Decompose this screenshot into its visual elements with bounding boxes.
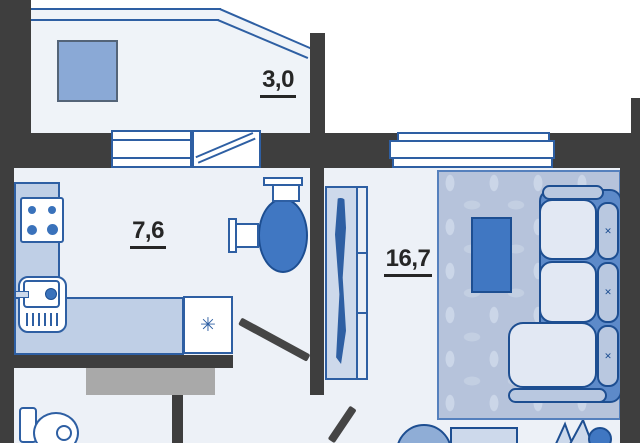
kitchen-window-mullion (113, 139, 190, 141)
sofa-seat-cushion (539, 261, 597, 323)
stove-burner (48, 206, 56, 214)
chair-seat (235, 223, 259, 248)
balcony-railing-inner (31, 19, 219, 21)
coffee-table (471, 217, 512, 293)
living-area-value: 16,7 (384, 247, 433, 277)
stove-icon (20, 197, 64, 243)
stove-burner (47, 224, 58, 235)
toilet-button (56, 425, 72, 441)
wardrobe-door-divider (356, 312, 366, 314)
kitchen-window (111, 130, 192, 168)
wardrobe-door-strip (356, 188, 366, 378)
tuft-mark: ✕ (604, 352, 612, 361)
tuft-mark: ✕ (604, 288, 612, 297)
washing-machine-grille (38, 313, 40, 326)
fridge-snowflake-glyph: ✳ (200, 314, 216, 337)
balcony-railing-outer (31, 8, 221, 10)
balcony-table (57, 40, 118, 102)
wall-balcony-pillar (310, 33, 325, 135)
wall-kitchen-bottom (14, 355, 233, 368)
kitchen-area-value: 7,6 (130, 219, 166, 249)
sofa-chaise-cushion (508, 322, 597, 388)
washing-machine-grille (56, 313, 58, 326)
washing-machine-knob (45, 288, 57, 300)
stove-burner (27, 225, 37, 235)
balcony-area-label: 3,0 (244, 68, 312, 98)
wall-balcony-left (0, 0, 31, 145)
sofa-back-cushion: ✕ (597, 325, 619, 387)
fridge-icon: ✳ (183, 296, 233, 354)
sofa-seat-cushion (539, 199, 597, 260)
chair-seat (272, 184, 300, 202)
kitchen-window-mullion (113, 157, 190, 159)
washing-machine-grille (32, 313, 34, 326)
wardrobe-door-divider (356, 252, 366, 254)
sofa-back-cushion: ✕ (597, 202, 619, 260)
washing-machine-grille (44, 313, 46, 326)
washing-machine-grille (50, 313, 52, 326)
plant-icon (553, 420, 615, 443)
wall-bathroom-stub (172, 395, 183, 443)
washing-machine-grille (26, 313, 28, 326)
washing-machine-handle (15, 291, 29, 298)
balcony-area-value: 3,0 (260, 68, 296, 98)
hall-desk (450, 427, 518, 443)
sofa-back-cushion: ✕ (597, 262, 619, 323)
living-area-label: 16,7 (374, 247, 442, 277)
ventilation-duct (86, 368, 215, 395)
wall-left (0, 145, 14, 443)
wall-right-notch (631, 98, 640, 135)
wall-kitchen-living-divider (310, 168, 324, 395)
stove-burner (28, 206, 36, 214)
sofa-armrest-top (542, 185, 604, 200)
floor-plan: ✳ ✕ ✕ ✕ (0, 0, 640, 443)
wall-right (620, 168, 640, 443)
sofa-armrest-bottom (508, 388, 607, 403)
kitchen-area-label: 7,6 (114, 219, 182, 249)
dining-table (258, 198, 308, 273)
tuft-mark: ✕ (604, 227, 612, 236)
living-window-band (392, 157, 553, 168)
